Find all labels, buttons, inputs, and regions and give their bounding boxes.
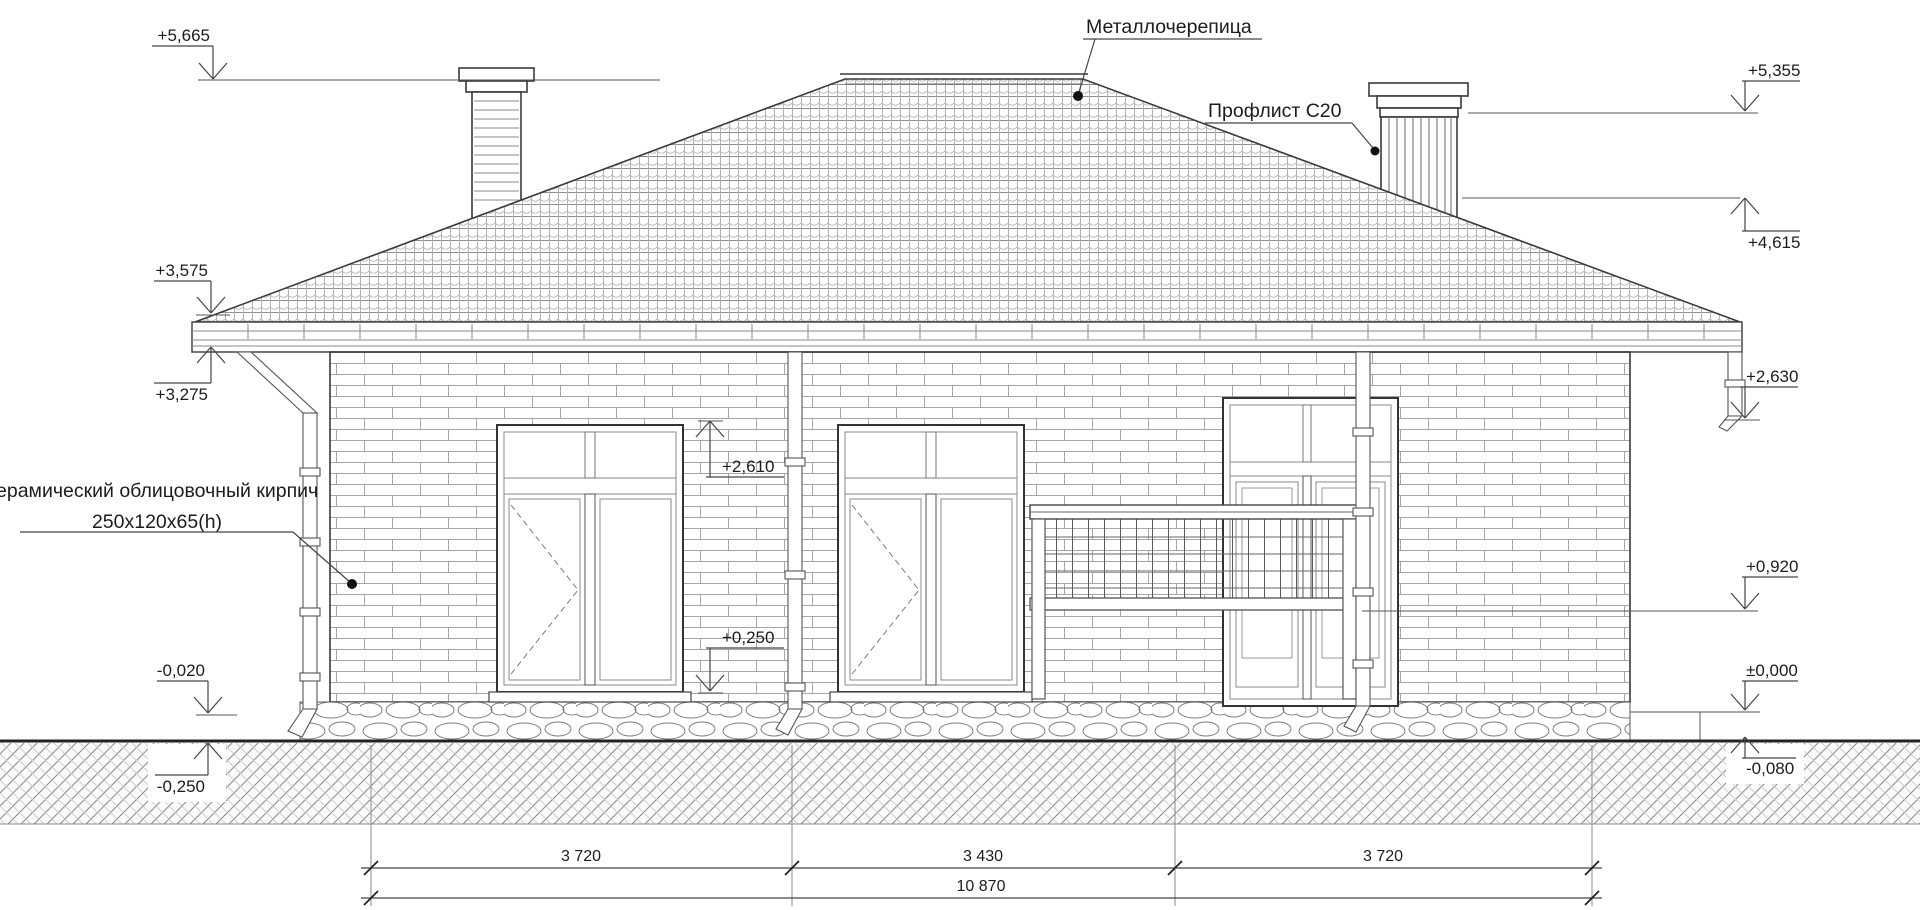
label-brick-line2: 250х120х65(h)	[92, 511, 222, 533]
mark-ground-right-value: -0,080	[1746, 759, 1794, 778]
leader-dot-roof	[1073, 91, 1083, 101]
leader-dot-cladding	[1371, 147, 1380, 156]
mark-ridge-value: +5,665	[158, 26, 210, 45]
chimney-left-cap	[459, 68, 534, 81]
mark-plinth-left-value: -0,020	[157, 661, 205, 680]
dim-seg3: 3 720	[1363, 848, 1403, 865]
mark-zero-level: ±0,000	[1638, 661, 1798, 712]
terrace-slab-edge	[1630, 712, 1700, 740]
mark-plinth-left: -0,020	[157, 661, 237, 715]
mark-eaves-top-value: +3,575	[156, 261, 208, 280]
mark-railing-top-value: +0,920	[1746, 557, 1798, 576]
window-1-mullion	[585, 494, 595, 685]
label-roof-material-text: Металлочерепица	[1086, 16, 1252, 38]
label-brick-line1: ерамический облицовочный кирпич	[0, 480, 318, 502]
mark-terrace-corner-value: +2,630	[1746, 367, 1798, 386]
dim-total: 10 870	[957, 878, 1006, 895]
stone-plinth	[300, 702, 1630, 740]
mark-chimney-top: +5,355	[1468, 61, 1800, 113]
mark-ridge: +5,665	[152, 26, 660, 80]
window-1-transom	[504, 478, 676, 494]
window-2-sill	[830, 692, 1032, 702]
chimney-right-cap-tier	[1377, 96, 1461, 108]
eaves-fascia	[192, 322, 1742, 352]
window-1-sill	[489, 692, 691, 702]
facade-elevation-drawing: +5,665 +3,575 +3,275 -0,020 -0,250 +5,35…	[0, 0, 1920, 910]
window-1	[489, 425, 691, 702]
ground-hatch	[0, 743, 1920, 824]
mark-roof-at-chimney-value: +4,615	[1748, 233, 1800, 252]
window-2-mullion	[926, 494, 936, 685]
mark-window-sill-value: +0,250	[722, 628, 774, 647]
railing-balusters	[1036, 519, 1354, 598]
mark-ground-left-value: -0,250	[157, 777, 205, 796]
roof	[192, 74, 1742, 352]
dim-seg2: 3 430	[963, 848, 1003, 865]
window-2-transom	[845, 478, 1017, 494]
label-chimney-cladding-text: Профлист С20	[1208, 100, 1342, 122]
downspout-corner-right	[1719, 352, 1745, 431]
mark-eaves-bottom: +3,275	[154, 347, 225, 404]
mark-chimney-top-value: +5,355	[1748, 61, 1800, 80]
railing-post-left	[1032, 519, 1045, 699]
window-2	[830, 425, 1032, 702]
roof-slope	[195, 79, 1740, 322]
railing-post-right	[1343, 519, 1356, 699]
leader-dot-brick	[347, 579, 357, 589]
mark-window-top-value: +2,610	[722, 457, 774, 476]
mark-eaves-top: +3,575	[154, 261, 230, 315]
dim-seg1: 3 720	[561, 848, 601, 865]
railing-bottom-rail	[1030, 598, 1358, 610]
chimney-right-cap	[1369, 83, 1468, 96]
mark-eaves-bottom-value: +3,275	[156, 385, 208, 404]
chimney-right-collar	[1380, 108, 1458, 117]
chimney-left-cap-tier	[466, 81, 527, 92]
mark-zero-level-value: ±0,000	[1746, 661, 1798, 680]
